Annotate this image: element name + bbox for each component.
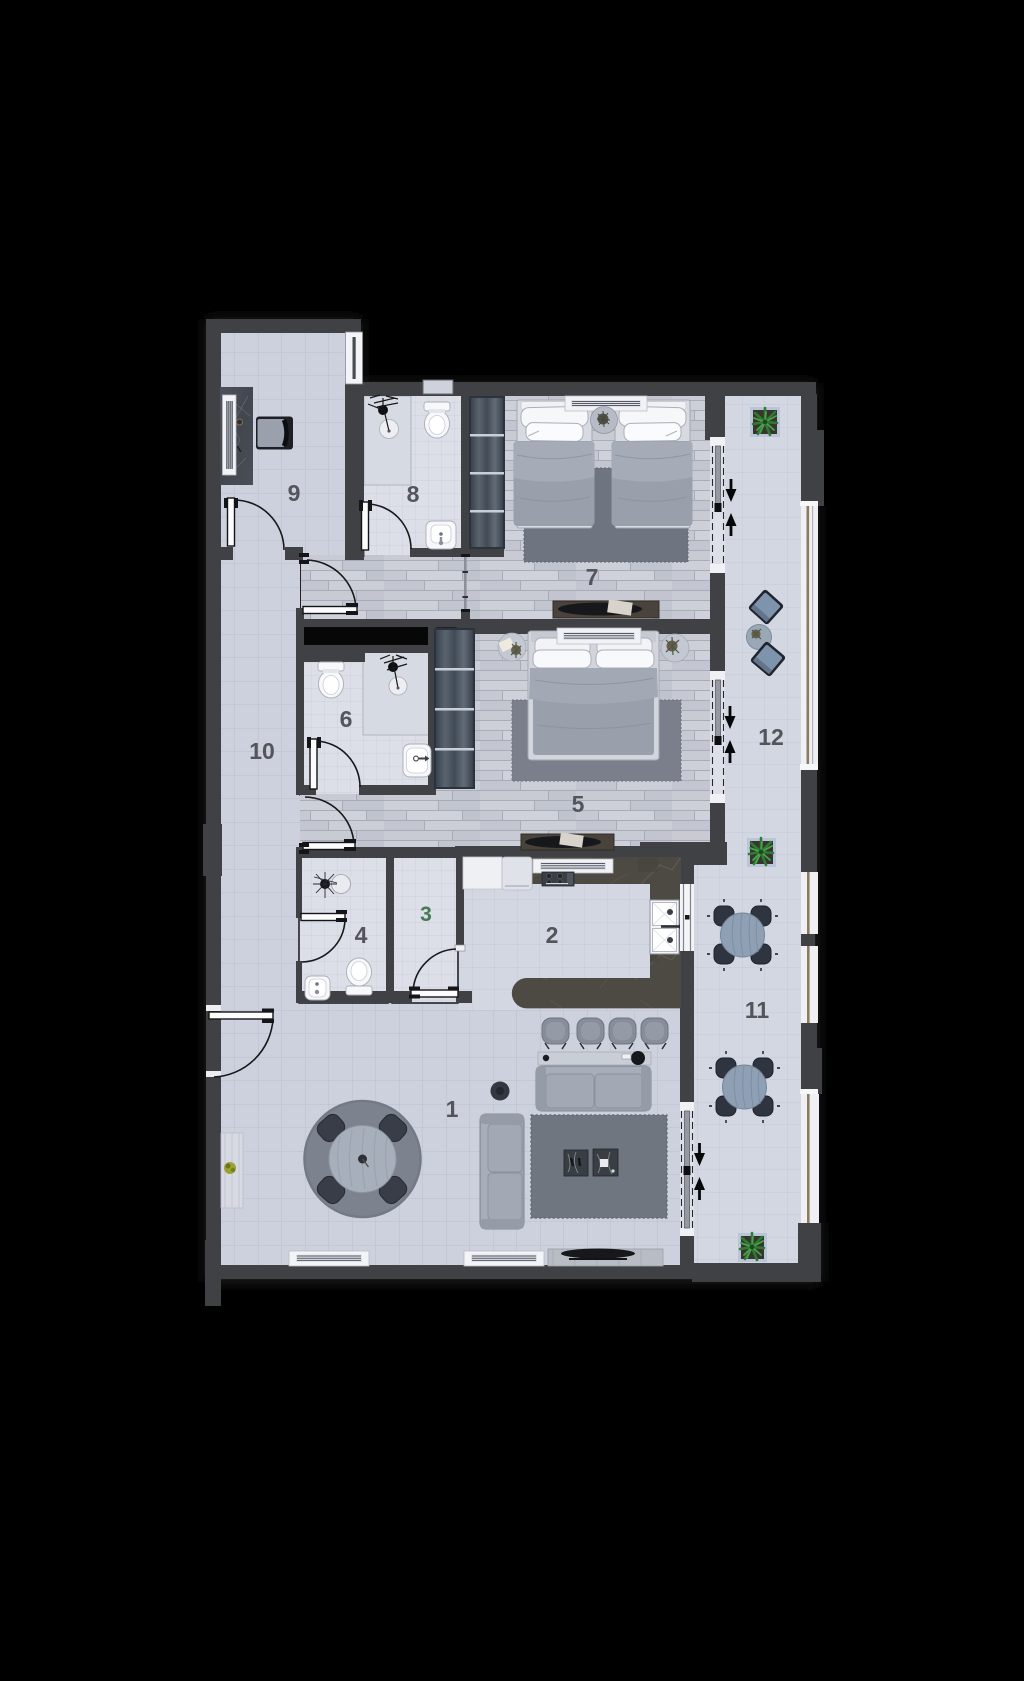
svg-text:4: 4 [355,922,368,948]
svg-text:2: 2 [546,922,559,948]
svg-text:1: 1 [446,1096,459,1122]
svg-text:8: 8 [407,481,420,507]
svg-text:3: 3 [420,903,432,926]
svg-text:7: 7 [586,564,599,590]
svg-text:10: 10 [249,738,275,764]
svg-text:6: 6 [340,706,353,732]
svg-text:5: 5 [572,791,585,817]
svg-text:11: 11 [745,997,770,1023]
svg-text:9: 9 [288,480,301,506]
svg-text:12: 12 [758,724,784,750]
